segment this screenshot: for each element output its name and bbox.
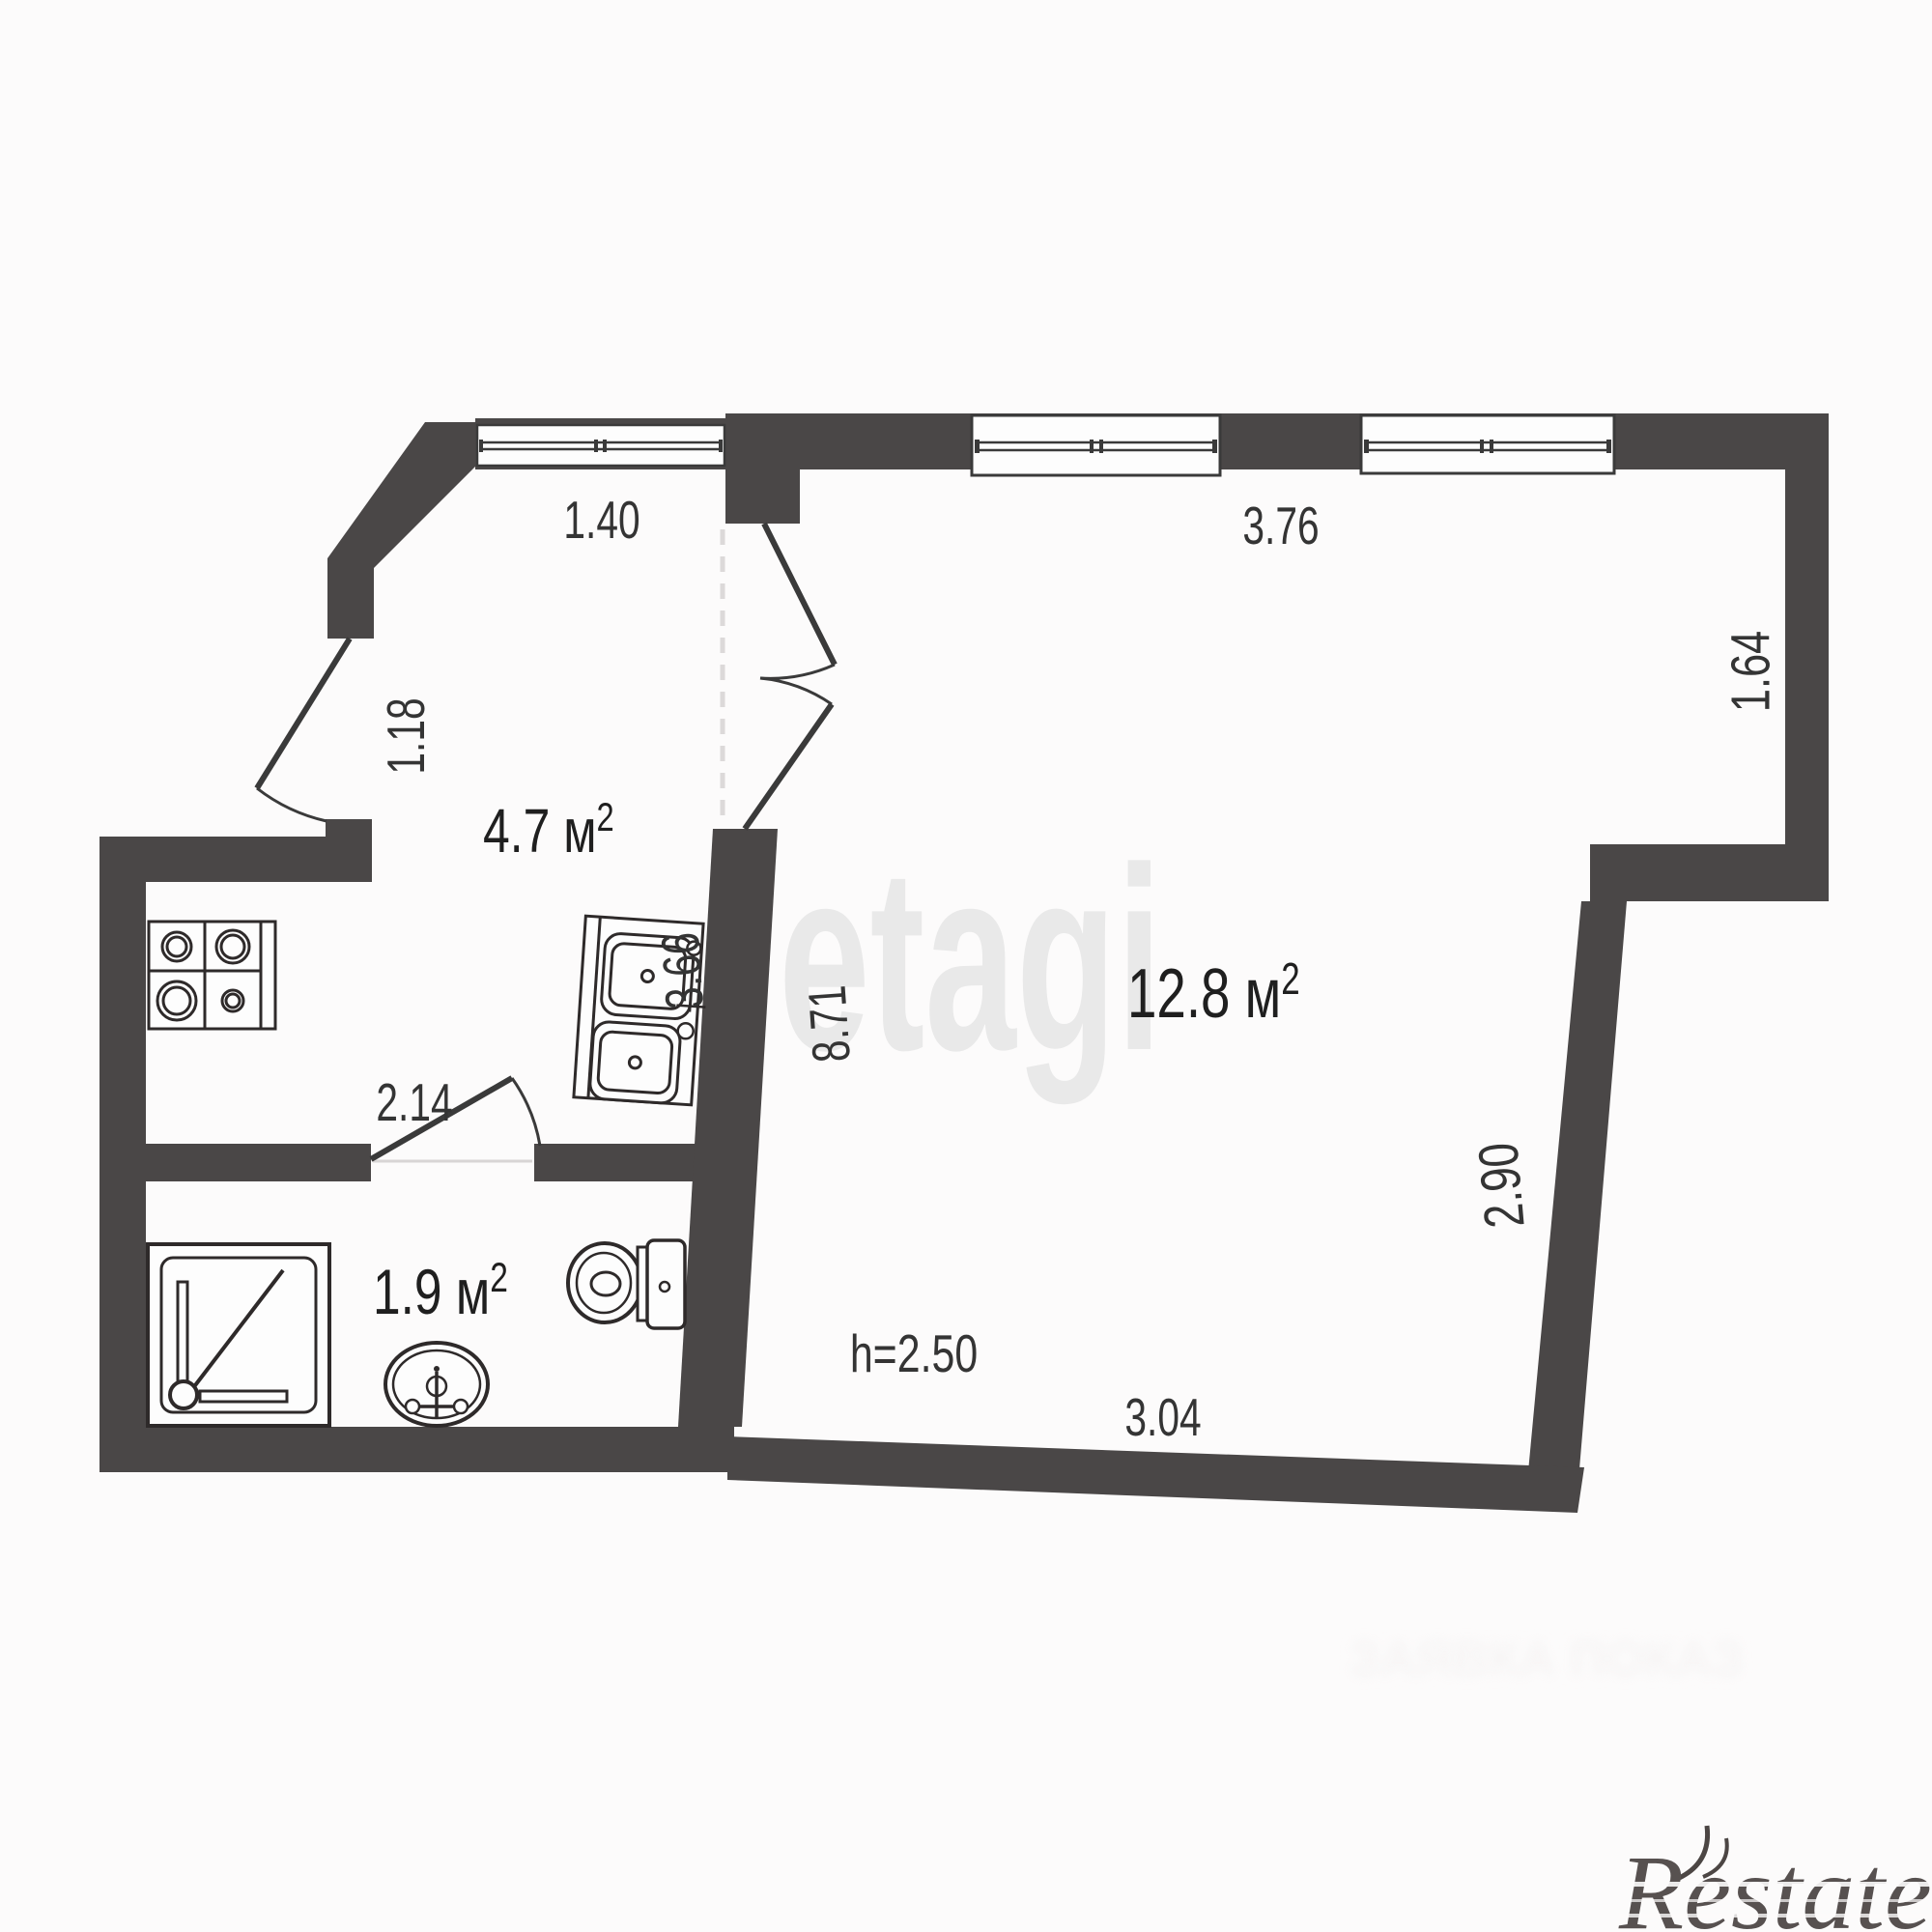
svg-text:2.90: 2.90 bbox=[1467, 1140, 1537, 1230]
svg-text:3.66: 3.66 bbox=[651, 930, 716, 1010]
svg-text:3.76: 3.76 bbox=[1242, 497, 1319, 555]
svg-text:3.04: 3.04 bbox=[1124, 1388, 1201, 1447]
svg-text:12.8 м2: 12.8 м2 bbox=[1127, 953, 1300, 1032]
svg-text:2.14: 2.14 bbox=[376, 1073, 452, 1132]
svg-text:8.71: 8.71 bbox=[798, 983, 863, 1064]
svg-text:1.64: 1.64 bbox=[1719, 631, 1781, 712]
svg-text:1.18: 1.18 bbox=[377, 697, 436, 774]
svg-text:1.40: 1.40 bbox=[563, 491, 639, 550]
svg-text:1.9 м2: 1.9 м2 bbox=[373, 1255, 508, 1327]
svg-text:ЗАЯВКА ПОКАЗ: ЗАЯВКА ПОКАЗ bbox=[1349, 1632, 1743, 1688]
svg-text:h=2.50: h=2.50 bbox=[850, 1324, 978, 1383]
svg-text:4.7 м2: 4.7 м2 bbox=[483, 794, 614, 866]
